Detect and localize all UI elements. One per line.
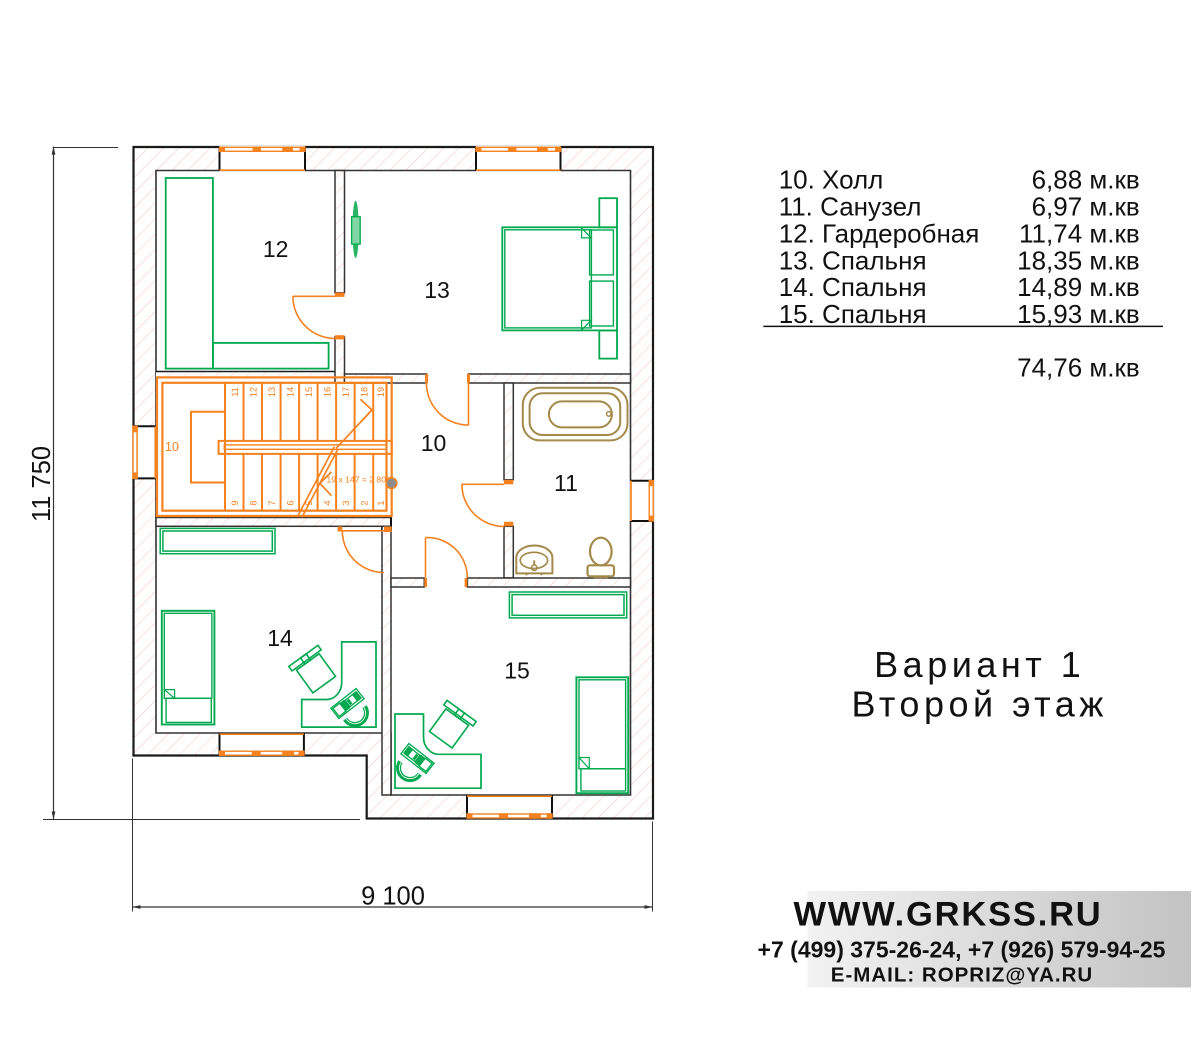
svg-text:4: 4 — [322, 500, 332, 505]
svg-text:10: 10 — [165, 440, 179, 454]
svg-text:18: 18 — [359, 387, 369, 397]
svg-text:15: 15 — [304, 387, 314, 397]
svg-text:13: 13 — [424, 277, 450, 303]
svg-text:74,76 м.кв: 74,76 м.кв — [1017, 353, 1140, 383]
svg-text:6,88 м.кв: 6,88 м.кв — [1032, 165, 1140, 195]
svg-text:5: 5 — [304, 500, 314, 505]
svg-text:1: 1 — [376, 500, 386, 505]
svg-text:6: 6 — [285, 500, 295, 505]
svg-text:14: 14 — [285, 387, 295, 397]
svg-text:18,35 м.кв: 18,35 м.кв — [1017, 245, 1140, 275]
svg-text:10: 10 — [421, 430, 447, 456]
svg-text:8: 8 — [248, 500, 258, 505]
svg-text:12. Гардеробная: 12. Гардеробная — [779, 218, 980, 248]
svg-text:14. Спальня: 14. Спальня — [779, 272, 927, 302]
svg-text:11,74 м.кв: 11,74 м.кв — [1019, 218, 1140, 248]
svg-text:12: 12 — [248, 387, 258, 397]
svg-text:7: 7 — [267, 500, 277, 505]
svg-text:2: 2 — [359, 500, 369, 505]
svg-text:WWW.GRKSS.RU: WWW.GRKSS.RU — [793, 896, 1102, 934]
svg-text:15,93 м.кв: 15,93 м.кв — [1017, 299, 1140, 329]
svg-text:+7 (499) 375-26-24, +7 (926) 5: +7 (499) 375-26-24, +7 (926) 579-94-25 — [758, 937, 1166, 963]
svg-text:13: 13 — [267, 387, 277, 397]
svg-text:14: 14 — [267, 625, 293, 651]
svg-text:Вариант 1: Вариант 1 — [874, 644, 1085, 685]
svg-text:11: 11 — [230, 387, 240, 397]
svg-text:14,89 м.кв: 14,89 м.кв — [1017, 272, 1140, 302]
svg-text:E-MAIL: ROPRIZ@YA.RU: E-MAIL: ROPRIZ@YA.RU — [831, 964, 1093, 987]
svg-text:19 x 147 = 2 800: 19 x 147 = 2 800 — [327, 474, 391, 484]
svg-text:17: 17 — [341, 387, 351, 397]
svg-text:6,97 м.кв: 6,97 м.кв — [1032, 192, 1140, 222]
svg-text:10. Холл: 10. Холл — [779, 165, 884, 195]
svg-text:11: 11 — [554, 470, 578, 496]
svg-text:9 100: 9 100 — [361, 883, 425, 911]
svg-text:15: 15 — [504, 658, 530, 684]
svg-text:13. Спальня: 13. Спальня — [779, 245, 927, 275]
svg-text:12: 12 — [263, 236, 289, 262]
svg-text:15. Спальня: 15. Спальня — [779, 299, 927, 329]
svg-text:19: 19 — [376, 387, 386, 397]
svg-text:Второй этаж: Второй этаж — [852, 684, 1108, 725]
svg-text:11. Санузел: 11. Санузел — [779, 192, 922, 222]
svg-text:3: 3 — [341, 500, 351, 505]
svg-text:16: 16 — [322, 387, 332, 397]
svg-text:11 750: 11 750 — [28, 446, 56, 522]
svg-text:9: 9 — [230, 500, 240, 505]
